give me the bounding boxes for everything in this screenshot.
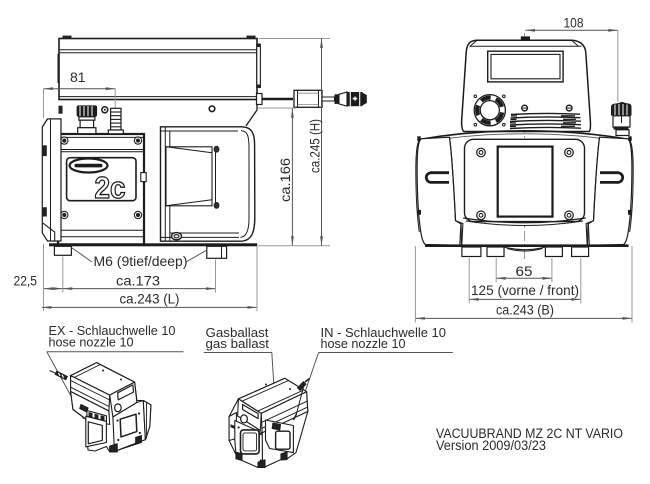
svg-text:hose nozzle 10: hose nozzle 10 <box>321 336 406 351</box>
svg-text:65: 65 <box>516 263 533 279</box>
svg-text:22,5: 22,5 <box>14 273 38 289</box>
svg-text:125 (vorne / front): 125 (vorne / front) <box>471 282 579 298</box>
svg-text:ca.245 (H): ca.245 (H) <box>307 119 323 173</box>
svg-text:81: 81 <box>70 69 86 85</box>
svg-text:ca.173: ca.173 <box>116 273 160 289</box>
svg-text:gas ballast: gas ballast <box>206 336 270 351</box>
svg-text:2c: 2c <box>95 170 126 205</box>
svg-text:ca.243 (L): ca.243 (L) <box>120 291 180 307</box>
svg-text:ca.166: ca.166 <box>277 158 293 202</box>
svg-text:ca.243 (B): ca.243 (B) <box>496 301 554 317</box>
svg-text:M6 (9tief/deep): M6 (9tief/deep) <box>94 253 188 269</box>
svg-text:Version 2009/03/23: Version 2009/03/23 <box>436 438 546 453</box>
svg-text:108: 108 <box>564 15 584 31</box>
svg-text:hose nozzle 10: hose nozzle 10 <box>49 335 134 350</box>
